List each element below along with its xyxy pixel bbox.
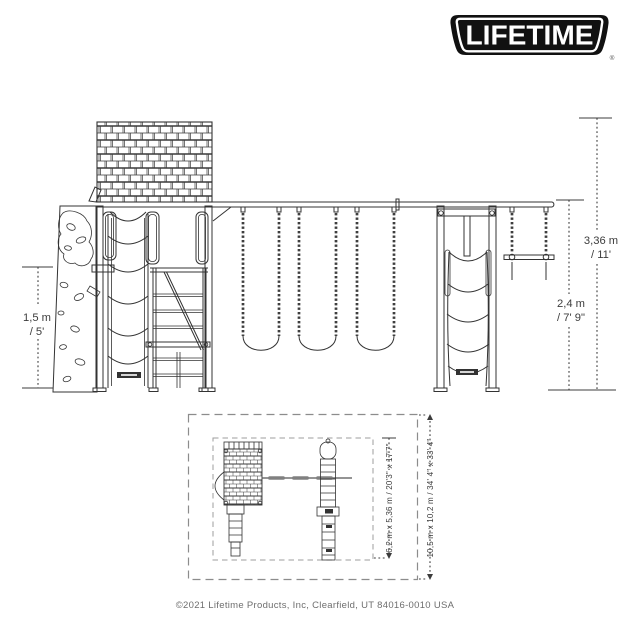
swing-chain bbox=[299, 213, 336, 336]
access-ladder bbox=[146, 268, 210, 392]
logo-text: LIFETIME bbox=[466, 20, 594, 51]
swing-seat bbox=[299, 336, 336, 350]
copyright-text: ©2021 Lifetime Products, Inc, Clearfield… bbox=[176, 600, 455, 611]
dimension-beam-height: 2,4 m / 7' 9" bbox=[556, 200, 585, 390]
dimension-overall-height-metric: 3,36 m bbox=[584, 235, 618, 247]
dimension-clearance-zone: 10,5 m x 10,2 m / 34' 4" x 33' 4" bbox=[419, 414, 435, 580]
dimension-clearance-zone-label: 10,5 m x 10,2 m / 34' 4" x 33' 4" bbox=[426, 439, 435, 558]
playset-diagram-canvas: LIFETIME ® bbox=[0, 0, 630, 630]
dimension-beam-height-metric: 2,4 m bbox=[557, 298, 585, 310]
dimension-overall-height: 3,36 m / 11' bbox=[548, 118, 618, 390]
belt-swing-2 bbox=[297, 207, 338, 350]
lifetime-logo: LIFETIME ® bbox=[450, 15, 614, 62]
belt-swing-1 bbox=[241, 207, 281, 350]
climbing-holds bbox=[58, 222, 87, 382]
trapeze-chain bbox=[512, 213, 546, 253]
dimension-platform-height-imperial: / 5' bbox=[30, 326, 45, 338]
side-view-drawing bbox=[53, 122, 554, 392]
dimension-frame-footprint-label: 6,2 m x 5,36 m / 20'3" x 17'7" bbox=[385, 443, 394, 552]
rock-wall-arc-top-view bbox=[215, 472, 224, 500]
slide-tower-right bbox=[434, 206, 499, 392]
dimension-platform-height-metric: 1,5 m bbox=[23, 312, 51, 324]
tower-window-cutouts bbox=[103, 212, 208, 264]
swing-seat bbox=[243, 336, 279, 350]
inset-clearance-boundary bbox=[189, 415, 418, 580]
belt-swing-3 bbox=[355, 207, 396, 350]
swing-chain bbox=[243, 213, 279, 336]
dimension-overall-height-imperial: / 11' bbox=[591, 249, 611, 261]
dimension-platform-height: 1,5 m / 5' bbox=[22, 267, 53, 388]
swing-seat bbox=[357, 336, 394, 350]
top-view-drawing bbox=[215, 439, 352, 560]
dimension-beam-height-imperial: / 7' 9" bbox=[557, 312, 585, 324]
dimension-frame-footprint: 6,2 m x 5,36 m / 20'3" x 17'7" bbox=[374, 438, 396, 559]
tower-step-bracket bbox=[87, 265, 114, 297]
brick-climbing-panel bbox=[89, 122, 212, 202]
swing-chain bbox=[357, 213, 394, 336]
rock-climbing-wall bbox=[53, 206, 97, 392]
tower-slide-left bbox=[108, 212, 148, 388]
top-view-inset: 6,2 m x 5,36 m / 20'3" x 17'7" 10,5 m x … bbox=[189, 414, 436, 580]
clubhouse-tower bbox=[87, 206, 215, 392]
trapeze-bar bbox=[504, 207, 554, 280]
logo-registered-mark: ® bbox=[610, 54, 615, 62]
